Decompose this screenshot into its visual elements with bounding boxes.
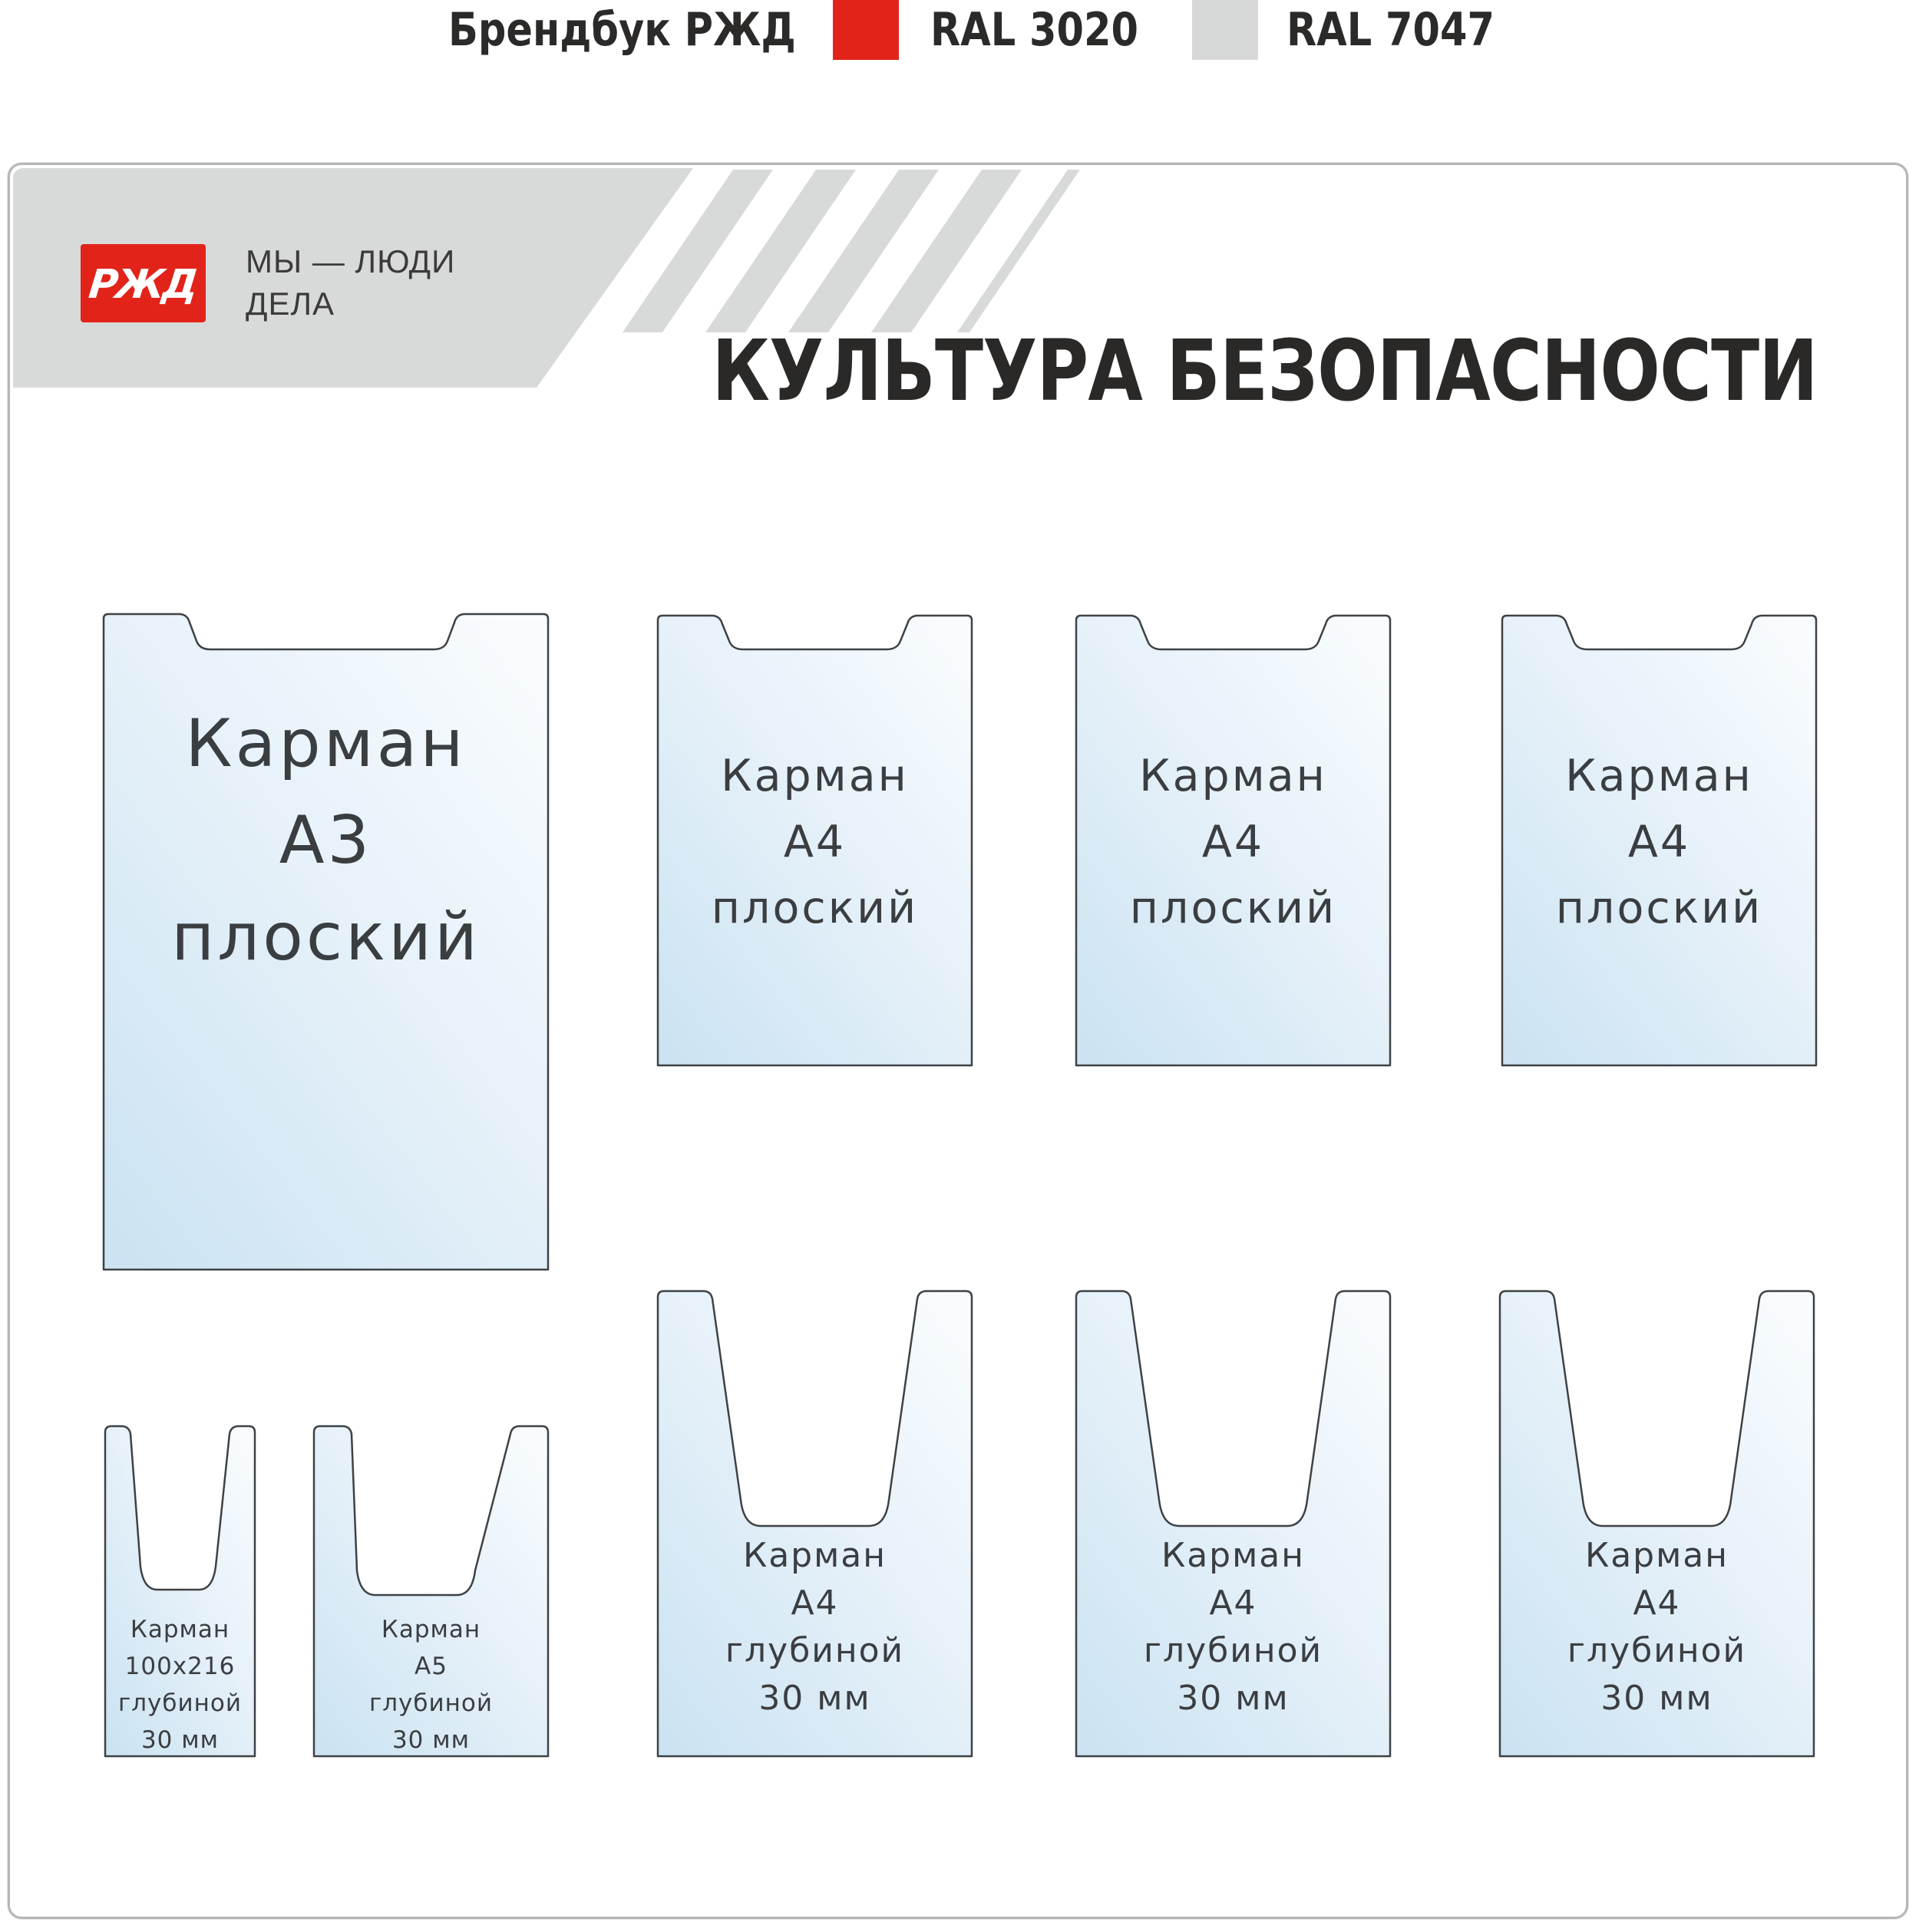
- pocket-label-line: глубиной: [104, 1685, 256, 1722]
- pocket-100x216-deep: Карман100х216глубиной30 мм: [104, 1425, 256, 1758]
- pocket-a4-flat-1-label: КарманА4плоский: [656, 743, 973, 941]
- ral-7047-label: RAL 7047: [1286, 0, 1495, 60]
- pocket-label-line: Карман: [1498, 1532, 1815, 1580]
- pocket-label-line: Карман: [1075, 1532, 1392, 1580]
- ral-7047-color-swatch: [1192, 0, 1258, 60]
- pocket-label-line: А4: [656, 809, 973, 875]
- brandbook-header: Брендбук РЖД RAL 3020 RAL 7047: [0, 0, 1919, 84]
- pocket-label-line: Карман: [102, 695, 550, 792]
- pocket-a4-deep-1: КарманА4глубиной30 мм: [656, 1290, 973, 1758]
- pocket-label-line: 30 мм: [104, 1722, 256, 1759]
- ral-3020-color-swatch: [833, 0, 899, 60]
- pocket-a4-flat-3: КарманА4плоский: [1501, 614, 1818, 1067]
- pocket-label-line: глубиной: [1075, 1627, 1392, 1675]
- rzd-logo-icon: РЖД: [81, 244, 206, 322]
- pocket-a4-deep-2-label: КарманА4глубиной30 мм: [1075, 1532, 1392, 1722]
- pocket-label-line: 100х216: [104, 1648, 256, 1685]
- rzd-logo-letters: РЖД: [87, 262, 198, 308]
- pocket-label-line: плоский: [102, 889, 550, 986]
- pocket-label-line: Карман: [656, 743, 973, 809]
- pocket-a5-deep: КарманА5глубиной30 мм: [312, 1425, 550, 1758]
- brandbook-title: Брендбук РЖД: [448, 0, 796, 60]
- pocket-label-line: 30 мм: [312, 1722, 550, 1759]
- pocket-label-line: глубиной: [1498, 1627, 1815, 1675]
- pocket-label-line: Карман: [104, 1611, 256, 1648]
- board-title: КУЛЬТУРА БЕЗОПАСНОСТИ: [712, 322, 1818, 420]
- pocket-label-line: Карман: [1075, 743, 1392, 809]
- pocket-a4-flat-1: КарманА4плоский: [656, 614, 973, 1067]
- pocket-label-line: плоский: [1501, 875, 1818, 941]
- pocket-label-line: плоский: [1075, 875, 1392, 941]
- rzd-logo: РЖД: [81, 244, 206, 322]
- pocket-label-line: А5: [312, 1648, 550, 1685]
- pocket-label-line: А4: [656, 1580, 973, 1627]
- pocket-a5-deep-label: КарманА5глубиной30 мм: [312, 1611, 550, 1759]
- info-board: РЖД МЫ — ЛЮДИ ДЕЛА КУЛЬТУРА БЕЗОПАСНОСТИ…: [8, 163, 1908, 1919]
- pocket-label-line: глубиной: [312, 1685, 550, 1722]
- page: Брендбук РЖД RAL 3020 RAL 7047 РЖД: [0, 0, 1919, 1932]
- pocket-a4-deep-2: КарманА4глубиной30 мм: [1075, 1290, 1392, 1758]
- pocket-label-line: А4: [1501, 809, 1818, 875]
- pocket-label-line: 30 мм: [1075, 1675, 1392, 1722]
- pocket-label-line: 30 мм: [1498, 1675, 1815, 1722]
- pocket-label-line: глубиной: [656, 1627, 973, 1675]
- pocket-label-line: Карман: [656, 1532, 973, 1580]
- pocket-label-line: Карман: [312, 1611, 550, 1648]
- slogan-line-1: МЫ — ЛЮДИ: [246, 240, 455, 282]
- pocket-a4-deep-3: КарманА4глубиной30 мм: [1498, 1290, 1815, 1758]
- pocket-label-line: А3: [102, 792, 550, 889]
- pocket-a4-deep-3-label: КарманА4глубиной30 мм: [1498, 1532, 1815, 1722]
- pocket-a3-flat-label: КарманА3плоский: [102, 695, 550, 986]
- pocket-100x216-deep-label: Карман100х216глубиной30 мм: [104, 1611, 256, 1759]
- pocket-label-line: А4: [1075, 809, 1392, 875]
- pocket-a4-flat-2-label: КарманА4плоский: [1075, 743, 1392, 941]
- slogan: МЫ — ЛЮДИ ДЕЛА: [246, 240, 455, 325]
- pocket-label-line: плоский: [656, 875, 973, 941]
- pocket-label-line: 30 мм: [656, 1675, 973, 1722]
- pocket-a4-deep-1-label: КарманА4глубиной30 мм: [656, 1532, 973, 1722]
- slogan-line-2: ДЕЛА: [246, 282, 455, 325]
- pocket-label-line: А4: [1498, 1580, 1815, 1627]
- pocket-a3-flat: КарманА3плоский: [102, 613, 550, 1271]
- pocket-label-line: Карман: [1501, 743, 1818, 809]
- pocket-label-line: А4: [1075, 1580, 1392, 1627]
- pocket-a4-flat-3-label: КарманА4плоский: [1501, 743, 1818, 941]
- ral-3020-label: RAL 3020: [930, 0, 1138, 60]
- pocket-a4-flat-2: КарманА4плоский: [1075, 614, 1392, 1067]
